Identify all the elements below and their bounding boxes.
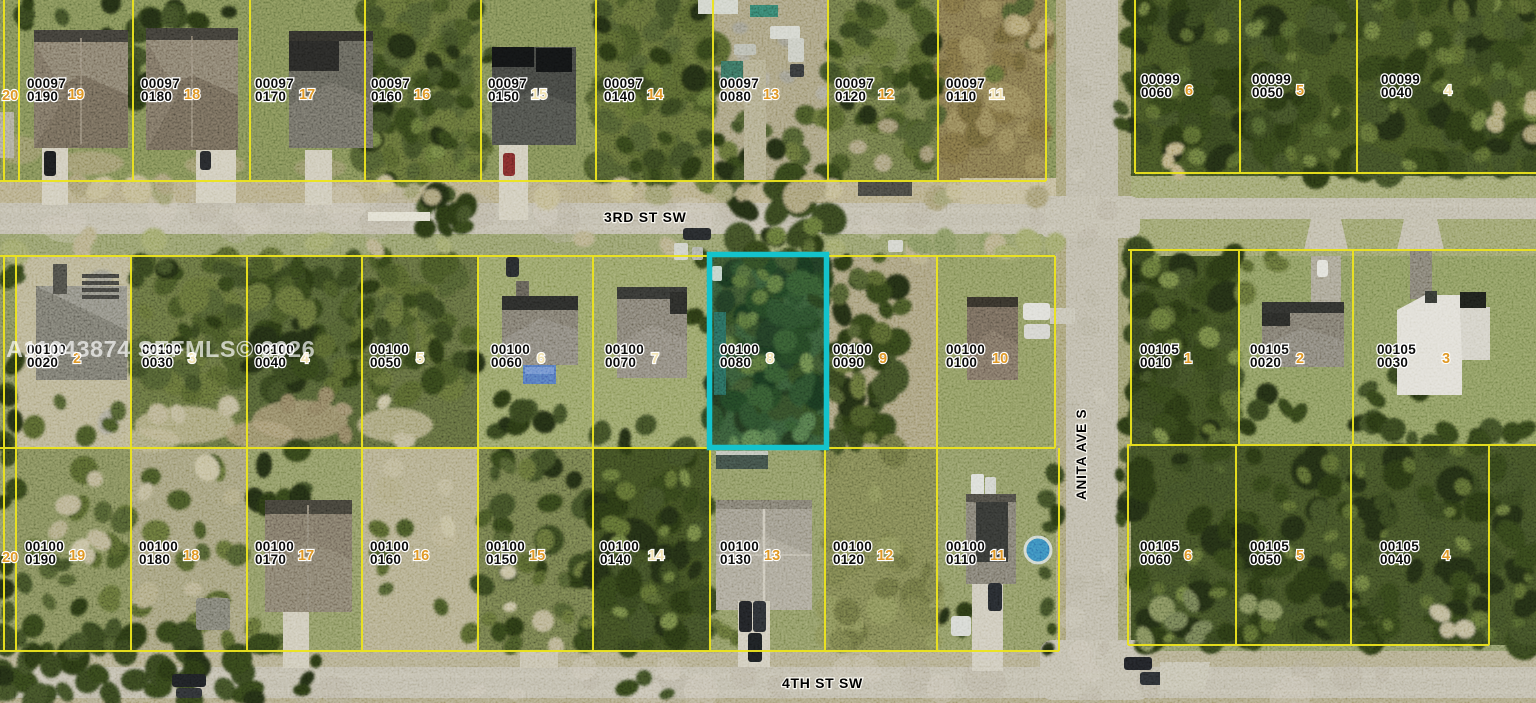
svg-text:0140: 0140 [600, 552, 631, 567]
svg-text:6: 6 [1185, 83, 1193, 99]
svg-text:0110: 0110 [946, 552, 977, 567]
svg-text:0140: 0140 [604, 89, 635, 104]
svg-text:20: 20 [2, 550, 18, 566]
svg-text:0090: 0090 [833, 355, 864, 370]
svg-text:0160: 0160 [370, 552, 401, 567]
svg-text:0050: 0050 [1250, 552, 1281, 567]
svg-text:20: 20 [2, 88, 18, 104]
svg-text:11: 11 [990, 548, 1005, 564]
svg-text:6: 6 [537, 351, 545, 367]
svg-text:10: 10 [992, 351, 1008, 367]
svg-text:0180: 0180 [139, 552, 170, 567]
svg-text:0180: 0180 [141, 89, 172, 104]
svg-text:12: 12 [877, 548, 893, 564]
svg-text:0130: 0130 [720, 552, 751, 567]
svg-text:0170: 0170 [255, 89, 286, 104]
svg-text:0080: 0080 [720, 89, 751, 104]
svg-text:3: 3 [1442, 351, 1450, 367]
svg-text:3RD ST SW: 3RD ST SW [604, 209, 687, 225]
svg-text:19: 19 [68, 87, 84, 103]
svg-text:0050: 0050 [1252, 85, 1283, 100]
svg-text:0120: 0120 [833, 552, 864, 567]
svg-text:1: 1 [1184, 351, 1192, 367]
svg-text:0150: 0150 [486, 552, 517, 567]
svg-text:0190: 0190 [27, 89, 58, 104]
svg-text:16: 16 [413, 548, 429, 564]
svg-text:0120: 0120 [835, 89, 866, 104]
svg-text:A11043874 SEFMLS© 2026: A11043874 SEFMLS© 2026 [6, 336, 315, 362]
svg-text:15: 15 [529, 548, 545, 564]
svg-text:13: 13 [764, 548, 780, 564]
svg-text:4TH ST SW: 4TH ST SW [782, 675, 863, 691]
svg-text:0030: 0030 [1377, 355, 1408, 370]
svg-text:0010: 0010 [1140, 355, 1171, 370]
svg-text:12: 12 [878, 87, 894, 103]
svg-text:0060: 0060 [491, 355, 522, 370]
svg-text:8: 8 [766, 351, 774, 367]
svg-text:16: 16 [414, 87, 430, 103]
svg-text:19: 19 [69, 548, 85, 564]
svg-text:15: 15 [531, 87, 547, 103]
svg-text:0040: 0040 [1380, 552, 1411, 567]
svg-text:9: 9 [879, 351, 887, 367]
svg-text:18: 18 [184, 87, 200, 103]
svg-text:5: 5 [1296, 83, 1304, 99]
svg-text:7: 7 [651, 351, 659, 367]
svg-text:5: 5 [1296, 548, 1304, 564]
svg-text:18: 18 [183, 548, 199, 564]
svg-text:0050: 0050 [370, 355, 401, 370]
svg-text:2: 2 [1296, 351, 1304, 367]
svg-text:0060: 0060 [1140, 552, 1171, 567]
svg-text:ANITA AVE S: ANITA AVE S [1074, 409, 1089, 500]
svg-text:0110: 0110 [946, 89, 977, 104]
svg-text:13: 13 [763, 87, 779, 103]
svg-text:17: 17 [298, 548, 314, 564]
svg-text:0150: 0150 [488, 89, 519, 104]
svg-text:0040: 0040 [1381, 85, 1412, 100]
svg-text:11: 11 [989, 87, 1004, 103]
svg-text:17: 17 [299, 87, 315, 103]
svg-text:0080: 0080 [720, 355, 751, 370]
svg-text:14: 14 [648, 548, 664, 564]
svg-text:6: 6 [1184, 548, 1192, 564]
svg-text:4: 4 [1442, 548, 1450, 564]
svg-text:0160: 0160 [371, 89, 402, 104]
svg-text:0020: 0020 [1250, 355, 1281, 370]
svg-text:4: 4 [1444, 83, 1452, 99]
svg-text:5: 5 [416, 351, 424, 367]
svg-text:0060: 0060 [1141, 85, 1172, 100]
svg-text:0170: 0170 [255, 552, 286, 567]
svg-text:0070: 0070 [605, 355, 636, 370]
svg-text:0190: 0190 [25, 552, 56, 567]
svg-text:14: 14 [647, 87, 663, 103]
svg-text:0100: 0100 [946, 355, 977, 370]
